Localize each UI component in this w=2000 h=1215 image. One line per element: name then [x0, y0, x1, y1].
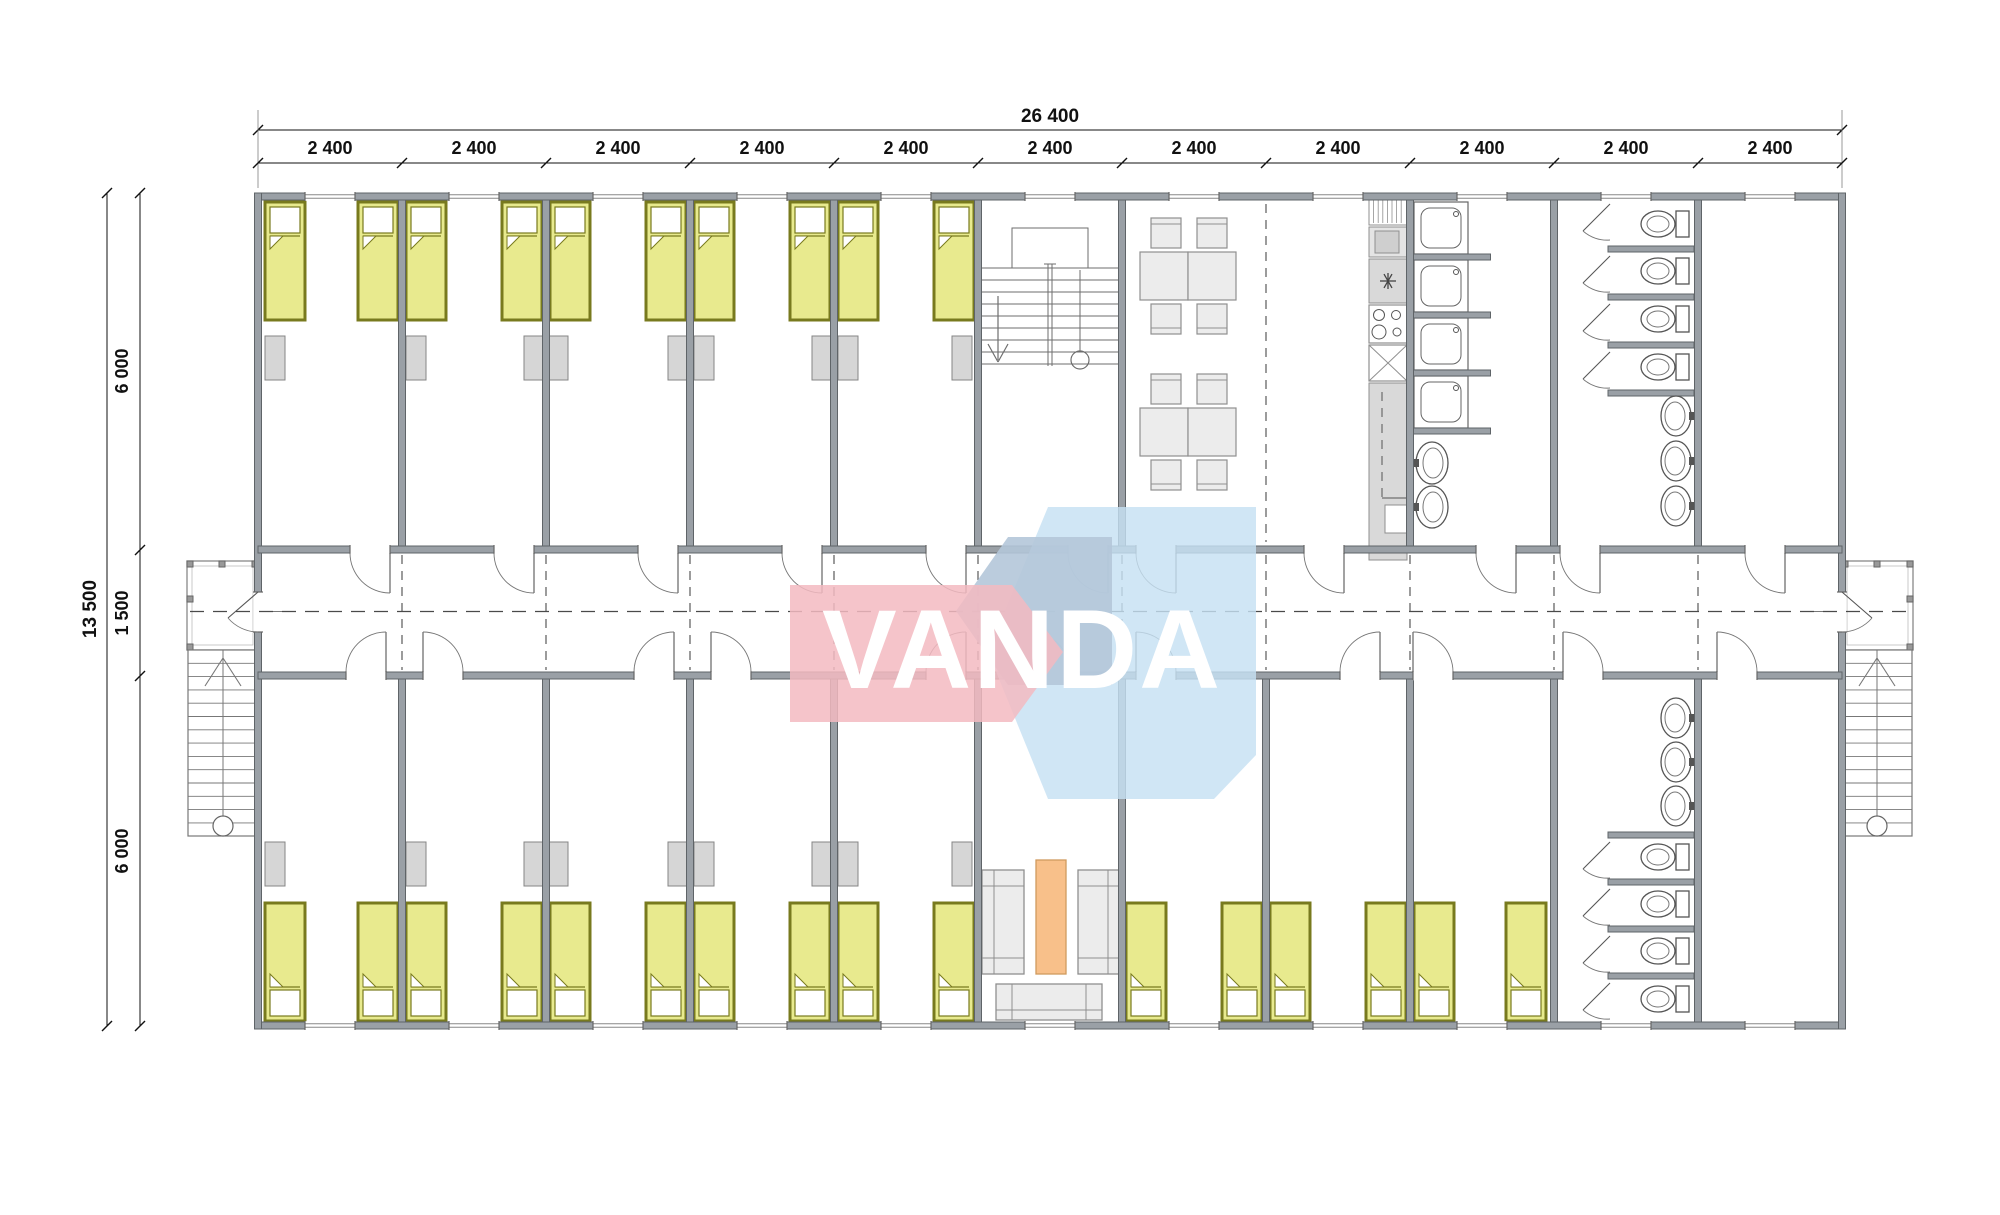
bed-icon	[1506, 903, 1546, 1021]
bed-icon	[358, 202, 398, 320]
wardrobe-icon	[694, 842, 714, 886]
central-staircase	[982, 228, 1118, 369]
lounge-area	[982, 860, 1120, 1020]
bed-icon	[550, 202, 590, 320]
dim-module-width: 2 400	[1603, 138, 1648, 158]
bed-icon	[838, 903, 878, 1021]
door-icon	[1413, 632, 1453, 680]
bed-icon	[934, 903, 974, 1021]
bed-icon	[1270, 903, 1310, 1021]
door-icon	[1563, 632, 1603, 680]
dim-module-width: 2 400	[1747, 138, 1792, 158]
window-icon	[737, 192, 787, 201]
window-icon	[305, 192, 355, 201]
door-icon	[1560, 545, 1600, 593]
window-icon	[1601, 192, 1651, 201]
dim-module-width: 2 400	[1459, 138, 1504, 158]
washbasin-icon	[1411, 442, 1448, 484]
dining-table-icon	[1140, 408, 1236, 456]
exterior-staircase	[1842, 650, 1912, 836]
window-icon	[305, 1021, 355, 1030]
washbasin-icon	[1661, 441, 1697, 481]
wardrobe-icon	[548, 842, 568, 886]
dim-height-segment: 6 000	[112, 828, 132, 873]
door-icon	[634, 632, 674, 680]
window-icon	[1169, 1021, 1219, 1030]
chair-icon	[1197, 218, 1227, 248]
chair-icon	[1151, 304, 1181, 334]
bed-icon	[502, 202, 542, 320]
wardrobe-icon	[694, 336, 714, 380]
wardrobe-icon	[265, 842, 285, 886]
bed-icon	[646, 903, 686, 1021]
entry-porch	[1842, 561, 1913, 650]
chair-icon	[1197, 374, 1227, 404]
wardrobe-icon	[812, 336, 832, 380]
washbasin-icon	[1661, 742, 1697, 782]
door-icon	[638, 545, 678, 593]
door-icon	[423, 632, 463, 680]
dim-overall-height: 13 500	[80, 580, 101, 638]
window-icon	[737, 1021, 787, 1030]
exterior-staircase	[188, 650, 258, 836]
bed-icon	[1126, 903, 1166, 1021]
door-icon	[1304, 545, 1344, 593]
wardrobe-icon	[838, 842, 858, 886]
bed-icon	[1366, 903, 1406, 1021]
door-icon	[1717, 632, 1757, 680]
door-icon	[1476, 545, 1516, 593]
toilet-icon	[1641, 354, 1689, 380]
stove-icon	[1369, 305, 1407, 343]
sofa-icon	[996, 984, 1102, 1020]
dim-overall-width: 26 400	[1021, 106, 1079, 127]
wardrobe-icon	[524, 336, 544, 380]
bed-icon	[550, 903, 590, 1021]
door-icon	[350, 545, 390, 593]
toilet-icon	[1641, 891, 1689, 917]
dim-module-width: 2 400	[1315, 138, 1360, 158]
sofa-icon	[1078, 870, 1120, 974]
bed-icon	[265, 202, 305, 320]
window-icon	[1457, 1021, 1507, 1030]
dim-module-width: 2 400	[451, 138, 496, 158]
window-icon	[1313, 192, 1363, 201]
toilet-room-bottom	[1583, 698, 1697, 1019]
dim-height-segment: 6 000	[112, 348, 132, 393]
bed-icon	[358, 903, 398, 1021]
toilet-icon	[1641, 258, 1689, 284]
window-icon	[881, 1021, 931, 1030]
coffee-table-icon	[1036, 860, 1066, 974]
door-icon	[711, 632, 751, 680]
bed-icon	[646, 202, 686, 320]
bed-icon	[790, 903, 830, 1021]
window-icon	[1601, 1021, 1651, 1030]
wardrobe-icon	[265, 336, 285, 380]
dim-module-width: 2 400	[1027, 138, 1072, 158]
bed-icon	[1414, 903, 1454, 1021]
washbasin-icon	[1661, 486, 1697, 526]
dim-module-width: 2 400	[595, 138, 640, 158]
washbasin-icon	[1661, 698, 1697, 738]
wardrobe-icon	[952, 336, 972, 380]
door-icon	[346, 632, 386, 680]
window-icon	[593, 1021, 643, 1030]
door-icon	[1340, 632, 1380, 680]
chair-icon	[1151, 460, 1181, 490]
door-icon	[494, 545, 534, 593]
toilet-icon	[1641, 211, 1689, 237]
wardrobe-icon	[952, 842, 972, 886]
wardrobe-icon	[812, 842, 832, 886]
window-icon	[1169, 192, 1219, 201]
bed-icon	[406, 202, 446, 320]
shower-room	[1407, 202, 1491, 528]
floor-plan-drawing: 26 4002 4002 4002 4002 4002 4002 4002 40…	[0, 0, 2000, 1215]
dimension-top: 26 4002 4002 4002 4002 4002 4002 4002 40…	[253, 106, 1847, 188]
bed-icon	[694, 202, 734, 320]
washbasin-icon	[1411, 486, 1448, 528]
counter-x-unit-icon	[1369, 345, 1407, 381]
wardrobe-icon	[548, 336, 568, 380]
kitchen-counter	[1369, 197, 1407, 560]
sofa-icon	[982, 870, 1024, 974]
window-icon	[1025, 1021, 1075, 1030]
chair-icon	[1151, 374, 1181, 404]
entry-door-icon	[1812, 592, 1872, 632]
bed-icon	[1222, 903, 1262, 1021]
chair-icon	[1151, 218, 1181, 248]
toilet-icon	[1641, 986, 1689, 1012]
wardrobe-icon	[406, 842, 426, 886]
bed-icon	[502, 903, 542, 1021]
dim-module-width: 2 400	[307, 138, 352, 158]
dim-module-width: 2 400	[1171, 138, 1216, 158]
bed-icon	[694, 903, 734, 1021]
washbasin-icon	[1661, 396, 1697, 436]
bed-icon	[265, 903, 305, 1021]
window-icon	[593, 192, 643, 201]
window-icon	[449, 192, 499, 201]
dim-module-width: 2 400	[739, 138, 784, 158]
window-icon	[881, 192, 931, 201]
washbasin-icon	[1661, 786, 1697, 826]
wardrobe-icon	[524, 842, 544, 886]
bed-icon	[838, 202, 878, 320]
dining-area	[1140, 218, 1236, 490]
dim-module-width: 2 400	[883, 138, 928, 158]
window-icon	[1745, 1021, 1795, 1030]
dining-table-icon	[1140, 252, 1236, 300]
wardrobe-icon	[838, 336, 858, 380]
entry-porch	[187, 561, 258, 650]
shower-icon	[1414, 202, 1468, 254]
toilet-room-top	[1583, 204, 1697, 526]
floor-plan-page: 26 4002 4002 4002 4002 4002 4002 4002 40…	[0, 0, 2000, 1215]
wardrobe-icon	[668, 842, 688, 886]
bed-icon	[934, 202, 974, 320]
window-icon	[1313, 1021, 1363, 1030]
chair-icon	[1197, 304, 1227, 334]
kitchen-sink-icon	[1369, 227, 1407, 257]
dimension-left: 13 5006 0001 5006 000	[80, 188, 145, 1031]
shower-icon	[1414, 318, 1468, 370]
wardrobe-icon	[406, 336, 426, 380]
door-icon	[1745, 545, 1785, 593]
bed-icon	[406, 903, 446, 1021]
logo-text: VANDA	[822, 587, 1222, 712]
shower-icon	[1414, 376, 1468, 428]
window-icon	[1745, 192, 1795, 201]
dim-height-segment: 1 500	[112, 590, 132, 635]
toilet-icon	[1641, 306, 1689, 332]
bed-icon	[790, 202, 830, 320]
shower-icon	[1414, 260, 1468, 312]
window-icon	[1025, 192, 1075, 201]
window-icon	[449, 1021, 499, 1030]
window-icon	[1457, 192, 1507, 201]
toilet-icon	[1641, 844, 1689, 870]
chair-icon	[1197, 460, 1227, 490]
wardrobe-icon	[668, 336, 688, 380]
toilet-icon	[1641, 938, 1689, 964]
